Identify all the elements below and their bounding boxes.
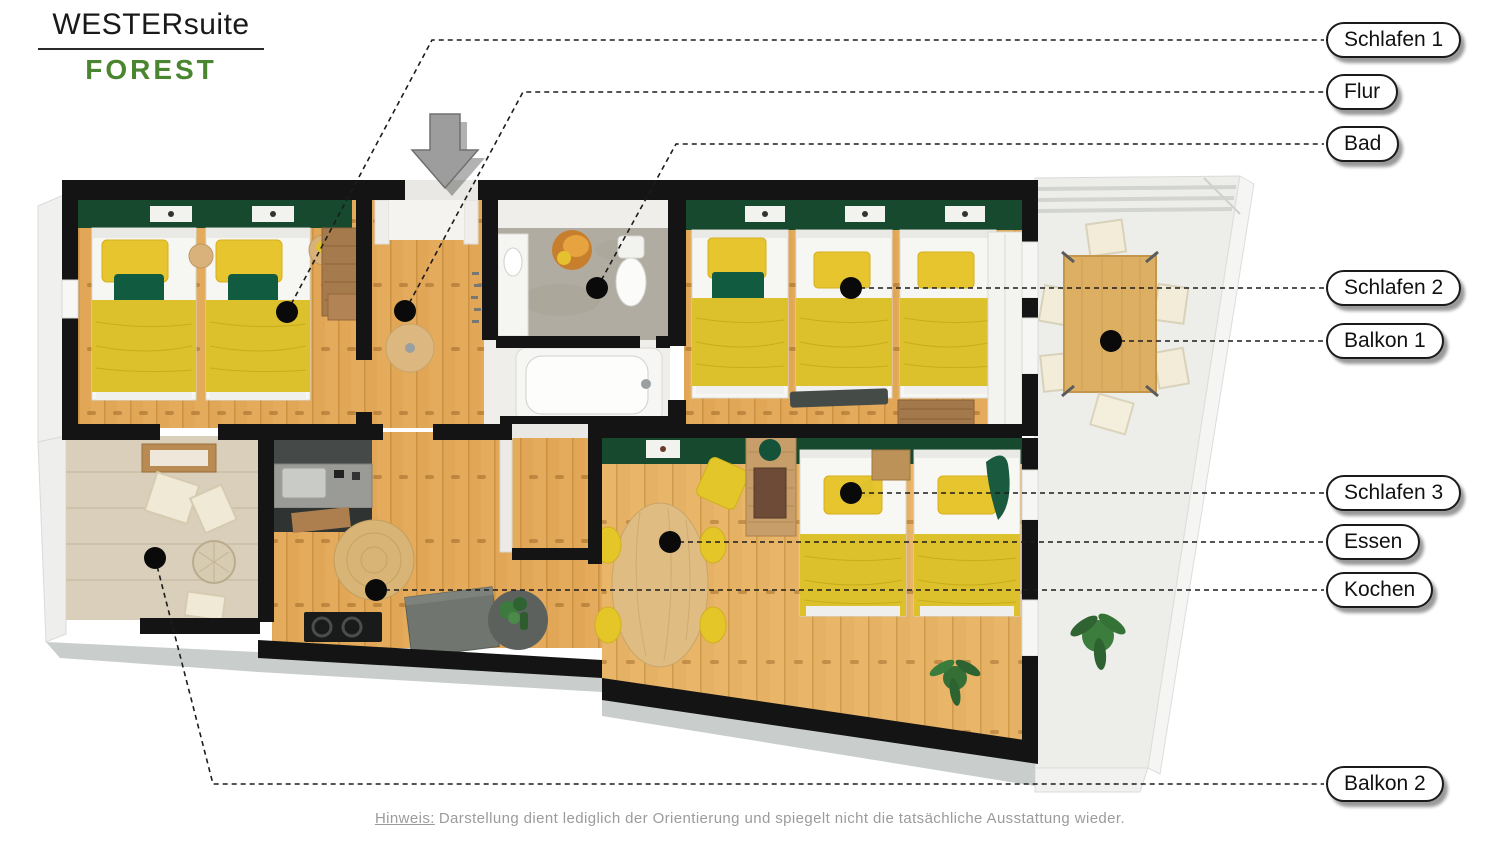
plant [488,590,548,650]
entry-vestibule [375,200,478,244]
room-marker-kochen [365,579,387,601]
bathroom-sink [498,234,528,336]
room-marker-schlafen-2 [840,277,862,299]
wardrobe [322,228,358,320]
bathroom-rug [552,230,592,270]
room-label-kochen: Kochen [1326,572,1433,608]
floor-plan [0,0,1500,844]
shelf-divider [746,436,796,536]
kitchen-island [405,587,500,657]
room-marker-schlafen-1 [276,301,298,323]
bed [692,230,788,398]
room-marker-balkon-2 [144,547,166,569]
disclaimer-prefix: Hinweis: [375,810,435,827]
kitchen-counter [274,434,372,533]
disclaimer-note: Hinweis:Darstellung dient lediglich der … [0,810,1500,827]
room-label-balkon-2: Balkon 2 [1326,766,1444,802]
round-rug [386,324,434,372]
room-marker-balkon-1 [1100,330,1122,352]
bed [900,230,996,398]
room-label-bad: Bad [1326,126,1399,162]
room-label-balkon-1: Balkon 1 [1326,323,1444,359]
room-label-schlafen-3: Schlafen 3 [1326,475,1461,511]
room-label-schlafen-2: Schlafen 2 [1326,270,1461,306]
room-marker-schlafen-3 [840,482,862,504]
room-marker-essen [659,531,681,553]
disclaimer-text: Darstellung dient lediglich der Orientie… [439,810,1125,827]
hall-wall [500,424,512,552]
room-label-essen: Essen [1326,524,1420,560]
bathtub [516,348,662,422]
rug [790,388,888,407]
side-table [189,244,213,268]
wardrobe [988,232,1022,428]
green-accent-wall [684,198,1024,230]
green-accent-wall [78,198,352,228]
room-marker-flur [394,300,416,322]
room-marker-bad [586,277,608,299]
bed [796,230,892,398]
room-label-schlafen-1: Schlafen 1 [1326,22,1461,58]
cooktop [304,612,382,642]
bed [92,228,196,400]
room-label-flur: Flur [1326,74,1398,110]
dresser [898,400,974,428]
